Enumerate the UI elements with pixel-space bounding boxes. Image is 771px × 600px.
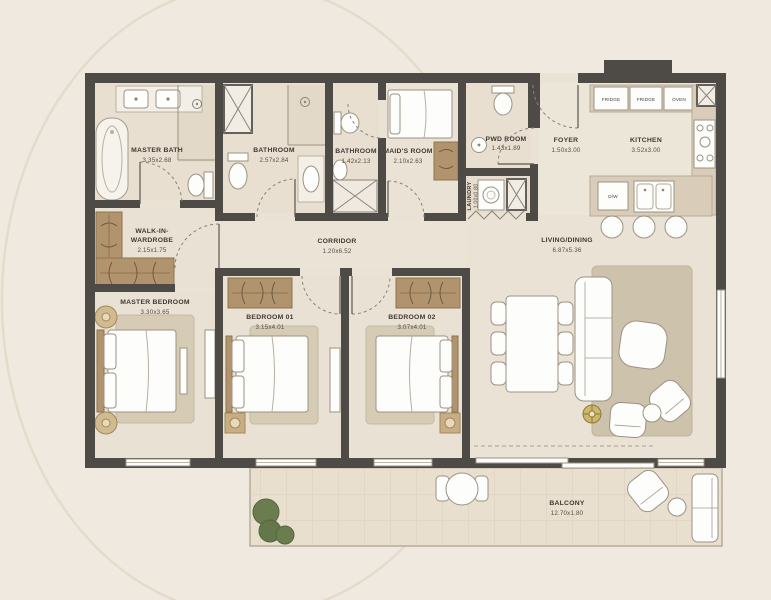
bathroom-a-label: BATHROOM	[253, 147, 295, 154]
oven-label: OVEN	[672, 97, 686, 102]
bedroom-02-dims: 3.07x4.01	[398, 324, 427, 331]
master-bath-label: MASTER BATH	[131, 147, 183, 154]
pillow	[232, 376, 244, 408]
master-bed	[97, 330, 176, 412]
dining-table	[506, 296, 558, 392]
balcony-label: BALCONY	[549, 500, 585, 507]
dishwasher-label: D/W	[608, 194, 618, 199]
cooktop-icon	[694, 120, 715, 168]
coffee-table	[617, 319, 669, 371]
double-sink-icon	[634, 181, 674, 212]
walk-in-label-1: WALK-IN-	[135, 228, 168, 235]
floor-lamp-icon	[583, 405, 601, 423]
pillow	[104, 373, 116, 408]
pillow	[104, 334, 116, 369]
balcony-dims: 12.70x1.80	[551, 510, 584, 517]
fridge-1-label: FRIDGE	[602, 97, 621, 102]
dining-chair	[491, 332, 506, 355]
bed	[376, 336, 458, 412]
toilet-icon	[334, 112, 359, 134]
corridor-dims: 1.20x6.52	[323, 248, 352, 255]
bedroom-02-label: BEDROOM 02	[388, 314, 435, 321]
foyer-label: FOYER	[554, 137, 579, 144]
corridor-label: CORRIDOR	[317, 238, 356, 245]
balcony-table-set	[436, 473, 488, 505]
wall-bumpout	[604, 60, 672, 74]
kitchen-label: KITCHEN	[630, 137, 662, 144]
bar-stool	[665, 216, 687, 238]
sliding-door	[476, 458, 568, 463]
living-dining-dims: 6.87x5.36	[553, 247, 582, 254]
maid-wardrobe	[434, 142, 458, 180]
floor-plan-canvas: BALCONY 12.70x1.80 MASTER BATH	[0, 0, 771, 600]
toilet-icon	[188, 172, 213, 198]
armchair	[609, 402, 647, 438]
bathroom-a-shower-floor	[288, 85, 325, 145]
headboard	[226, 336, 232, 412]
dining-chair	[558, 302, 573, 325]
bathtub-icon	[96, 118, 128, 200]
shaft-icon	[697, 85, 716, 106]
nightstand	[95, 412, 117, 434]
toilet-icon	[228, 153, 248, 189]
headboard	[97, 330, 104, 412]
bar-stool	[601, 216, 623, 238]
laundry-label: LAUNDRY	[467, 182, 473, 211]
dining-chair	[491, 302, 506, 325]
bathroom-b-label: BATHROOM	[335, 148, 377, 155]
headboard	[452, 336, 458, 412]
toilet-icon	[492, 86, 514, 115]
living-dining-label: LIVING/DINING	[541, 237, 593, 244]
dining-chair	[558, 362, 573, 385]
bed	[226, 336, 308, 412]
bar-stool	[633, 216, 655, 238]
sliding-door	[562, 463, 654, 468]
floor-plan-page: BALCONY 12.70x1.80 MASTER BATH	[0, 0, 771, 600]
bench	[180, 348, 187, 394]
pillow	[440, 340, 452, 372]
balcony-side-table	[668, 498, 686, 516]
pwd-room-dims: 1.43x1.89	[492, 145, 521, 152]
master-bedroom-label: MASTER BEDROOM	[120, 299, 190, 306]
dresser	[330, 348, 340, 412]
sofa	[575, 277, 612, 401]
kitchen-island: D/W	[590, 176, 712, 216]
laundry-dims: 1.00x0.80	[474, 184, 480, 209]
nightstand	[95, 306, 117, 328]
walk-in-dims: 2.15x1.75	[138, 247, 167, 254]
balcony: BALCONY 12.70x1.80	[250, 466, 722, 546]
dining-chair	[491, 362, 506, 385]
bathroom-a-dims: 2.57x2.84	[260, 157, 289, 164]
master-bedroom-dims: 3.30x3.65	[141, 309, 170, 316]
dining-set	[491, 296, 573, 392]
maid-bed	[388, 90, 452, 138]
fridge-2-label: FRIDGE	[637, 97, 656, 102]
bathroom-b-dims: 1.42x2.13	[342, 158, 371, 165]
pillow	[390, 94, 400, 134]
foyer-dims: 1.50x3.00	[552, 147, 581, 154]
dresser	[205, 330, 215, 398]
side-table	[643, 404, 661, 422]
bedroom-01-dims: 3.15x4.01	[256, 324, 285, 331]
maids-room-dims: 2.10x2.63	[394, 158, 423, 165]
maids-room-label: MAID'S ROOM	[383, 148, 432, 155]
nightstand	[440, 413, 460, 433]
pillow	[232, 340, 244, 372]
balcony-sofa	[692, 474, 718, 542]
walk-in-label-2: WARDROBE	[131, 237, 174, 244]
bedroom-01-label: BEDROOM 01	[246, 314, 293, 321]
nightstand	[225, 413, 245, 433]
sink-icon	[303, 166, 319, 192]
dining-chair	[558, 332, 573, 355]
pillow	[440, 376, 452, 408]
kitchen-dims: 3.52x3.00	[632, 147, 661, 154]
washing-machine-icon	[478, 180, 504, 210]
